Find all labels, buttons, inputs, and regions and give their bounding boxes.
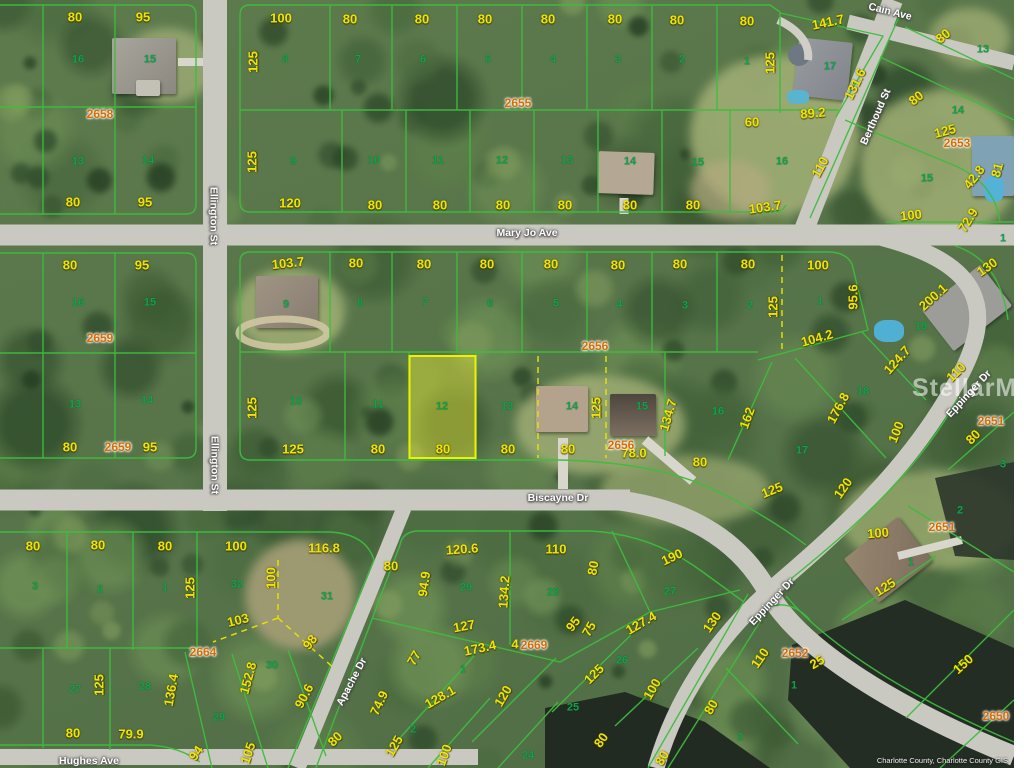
lot-number: 6 [487,299,493,310]
block-number: 2658 [87,108,114,120]
dimension-label: 110 [809,155,830,180]
dimension-label: 80 [541,13,555,26]
street-label: Apache Dr [335,656,369,707]
dimension-label: 100 [270,12,292,25]
street-label: Mary Jo Ave [496,228,557,239]
dimension-label: 80 [906,88,925,107]
dimension-label: 98 [300,632,319,651]
lot-number: 27 [69,685,81,696]
lot-number: 10 [290,397,302,408]
lot-number: 9 [290,157,296,168]
dimension-label: 80 [653,748,671,767]
dimension-label: 80 [693,456,707,469]
dimension-label: 150 [951,652,976,676]
lot-number: 25 [567,703,579,714]
dimension-label: 125 [590,397,603,419]
block-number: 2650 [983,710,1010,722]
dimension-label: 80 [740,15,754,28]
dimension-label: 105 [238,741,257,766]
dimension-label: 100 [434,743,454,768]
block-number: 2664 [190,646,217,658]
dimension-label: 80 [673,258,687,271]
dimension-label: 80 [686,199,700,212]
lot-number: 14 [624,157,636,168]
lot-number: 1 [162,583,168,594]
lot-number: 11 [432,156,444,167]
dimension-label: 80 [417,258,431,271]
dimension-label: 95.6 [847,284,860,309]
lot-number: 5 [553,299,559,310]
dimension-label: 80 [544,258,558,271]
dimension-label: 95 [138,196,152,209]
lot-number: 3 [615,55,621,66]
lot-number: 31 [321,592,333,603]
lot-number: 1 [908,558,914,569]
block-number: 2651 [929,521,956,533]
block-number: 2656 [608,439,635,451]
dimension-label: 80 [478,13,492,26]
lot-number: 19 [915,322,927,333]
lot-number: 26 [616,656,628,667]
dimension-label: 120 [492,683,514,708]
lot-number: 14 [141,396,153,407]
dimension-label: 80 [91,539,105,552]
lot-number: 29 [460,583,472,594]
dimension-label: 120 [831,475,854,500]
dimension-label: 89.2 [800,105,826,120]
lot-number: 1 [744,57,750,68]
dimension-label: 80 [343,13,357,26]
dimension-label: 125 [767,296,780,318]
dimension-label: 130 [974,255,999,278]
dimension-label: 110 [546,543,567,556]
lot-number: 16 [72,55,84,66]
block-number: 2659 [87,332,114,344]
dimension-label: 80 [561,443,575,456]
dimension-label: 120.6 [445,541,478,556]
lot-number: 16 [72,298,84,309]
lot-number: 2 [410,725,416,736]
dimension-label: 100 [867,526,890,541]
dimension-label: 72.9 [956,206,980,234]
dimension-label: 125 [760,480,785,500]
lot-number: 2 [679,55,685,66]
lot-number: 28 [139,682,151,693]
dimension-label: 125 [383,733,405,758]
dimension-label: 80 [963,427,982,446]
dimension-label: 4 [511,638,518,651]
dimension-label: 95 [136,11,150,24]
lot-number: 24 [522,751,534,762]
street-label: Ellington St [209,436,220,494]
lot-number: 1 [460,665,466,676]
dimension-label: 136.4 [162,673,180,707]
dimension-label: 80 [66,727,80,740]
dimension-label: 80 [384,560,398,573]
lot-number: 9 [283,300,289,311]
dimension-label: 120 [279,197,301,210]
dimension-label: 60 [745,116,759,129]
dimension-label: 125 [872,576,897,599]
dimension-label: 125 [247,51,260,73]
lot-number: 30 [266,661,278,672]
lot-number: 27 [664,587,676,598]
lot-number: 16 [712,407,724,418]
lot-number: 8 [282,55,288,66]
lot-number: 2 [97,585,103,596]
dimension-label: 80 [415,13,429,26]
lot-number: 1 [817,297,823,308]
dimension-label: 134.7 [657,398,678,433]
lot-number: 10 [368,156,380,167]
lot-number: 7 [355,55,361,66]
street-label: Ellington St [208,187,219,245]
dimension-label: 116.8 [308,542,340,555]
lot-number: 18 [857,387,869,398]
attribution-text: Charlotte County, Charlotte County GIS [877,756,1008,765]
dimension-label: 125 [184,577,197,599]
street-label: Biscayne Dr [528,493,589,504]
lot-number: 15 [692,158,704,169]
dimension-label: 100 [641,676,663,701]
dimension-label: 127.4 [624,609,659,637]
lot-number: 15 [144,55,156,66]
dimension-label: 90.6 [292,682,315,710]
lot-number: 13 [501,402,513,413]
street-label: Eppinger Dr [748,576,797,627]
lot-number: 15 [144,298,156,309]
lot-number: 7 [422,298,428,309]
dimension-label: 80 [608,13,622,26]
dimension-label: 103.7 [271,255,305,271]
lot-number: 11 [372,400,384,411]
block-number: 2669 [521,639,548,651]
dimension-label: 74.9 [368,689,390,717]
dimension-label: 80 [325,729,344,748]
watermark: StellarMLS [912,374,1024,403]
dimension-label: 42.8 [961,163,987,191]
lot-number: 2 [957,506,963,517]
dimension-label: 80 [63,441,77,454]
dimension-label: 94.9 [416,571,432,598]
dimension-label: 80 [741,258,755,271]
dimension-label: 100 [900,207,923,222]
dimension-label: 80 [558,199,572,212]
dimension-label: 127 [452,618,476,635]
dimension-label: 25 [807,653,826,671]
block-number: 2655 [505,97,532,109]
dimension-label: 104.2 [800,327,835,348]
dimension-label: 103 [226,611,250,629]
dimension-label: 80 [933,26,952,45]
dimension-label: 95 [135,259,149,272]
dimension-label: 80 [68,11,82,24]
lot-number: 1 [1000,234,1006,245]
dimension-label: 124.7 [881,344,912,377]
lot-number: 14 [566,402,578,413]
lot-number: 15 [636,402,648,413]
label-layer: 80809510080808080808080141.7125125131.68… [0,0,1024,768]
lot-number: 14 [142,156,154,167]
dimension-label: 173.4 [463,638,498,657]
image-edge-margin [1014,0,1024,768]
dimension-label: 152.8 [238,661,259,696]
street-label: Berthoud St [859,87,893,146]
dimension-label: 80 [63,259,77,272]
block-number: 2659 [105,441,132,453]
dimension-label: 162 [737,406,757,431]
dimension-label: 80 [436,443,450,456]
lot-number: 17 [796,446,808,457]
lot-number: 3 [682,301,688,312]
dimension-label: 95 [143,441,157,454]
dimension-label: 128.1 [423,683,458,711]
lot-number: 5 [485,55,491,66]
lot-number: 3 [1000,460,1006,471]
block-number: 2656 [582,340,609,352]
dimension-label: 103.7 [748,198,782,215]
dimension-label: 80 [585,560,600,577]
lot-number: 16 [776,157,788,168]
lot-number: 1 [791,681,797,692]
dimension-label: 125 [764,52,777,74]
dimension-label: 80 [623,199,637,212]
dimension-label: 77 [405,648,423,667]
dimension-label: 80 [26,540,40,553]
dimension-label: 94 [187,743,206,762]
dimension-label: 130 [700,609,723,634]
block-number: 2651 [978,415,1005,427]
dimension-label: 125 [246,151,259,173]
dimension-label: 110 [749,646,772,671]
street-label: Hughes Ave [59,756,119,767]
dimension-label: 81 [989,161,1005,178]
lot-number: 6 [420,55,426,66]
dimension-label: 100 [886,420,906,445]
dimension-label: 200.1 [917,281,950,312]
dimension-label: 134.2 [496,575,511,608]
lot-number: 8 [357,299,363,310]
lot-number: 17 [824,62,836,73]
lot-number: 2 [747,301,753,312]
dimension-label: 79.9 [118,728,143,741]
lot-number: 14 [952,106,964,117]
block-number: 2652 [782,647,809,659]
dimension-label: 80 [611,259,625,272]
dimension-label: 100 [807,259,829,272]
dimension-label: 190 [659,547,684,568]
dimension-label: 80 [496,199,510,212]
dimension-label: 80 [349,257,363,270]
dimension-label: 80 [670,14,684,27]
lot-number: 2 [737,733,743,744]
dimension-label: 80 [158,540,172,553]
lot-number: 12 [496,156,508,167]
lot-number: 4 [616,300,622,311]
lot-number: 13 [561,156,573,167]
dimension-label: 80 [371,443,385,456]
dimension-label: 80 [592,730,611,749]
dimension-label: 80 [368,199,382,212]
dimension-label: 125 [582,662,607,687]
dimension-label: 80 [501,443,515,456]
lot-number: 12 [436,402,448,413]
dimension-label: 80 [433,199,447,212]
lot-number: 3 [32,582,38,593]
dimension-label: 80 [702,697,720,716]
dimension-label: 80 [480,258,494,271]
dimension-label: 125 [93,674,106,696]
aerial-parcel-map: 80809510080808080808080141.7125125131.68… [0,0,1024,768]
lot-number: 15 [921,174,933,185]
lot-number: 29 [213,713,225,724]
dimension-label: 141.7 [811,12,846,31]
street-label: Cain Ave [867,2,912,23]
lot-number: 13 [72,157,84,168]
dimension-label: 176.8 [825,391,852,426]
lot-number: 28 [547,588,559,599]
dimension-label: 100 [265,567,278,589]
dimension-label: 125 [246,397,259,419]
block-number: 2653 [944,137,971,149]
lot-number: 4 [550,55,556,66]
dimension-label: 131.6 [842,67,868,102]
lot-number: 32 [231,580,243,591]
dimension-label: 100 [225,540,247,553]
lot-number: 13 [69,400,81,411]
dimension-label: 80 [66,196,80,209]
lot-number: 13 [977,45,989,56]
dimension-label: 125 [282,443,304,456]
